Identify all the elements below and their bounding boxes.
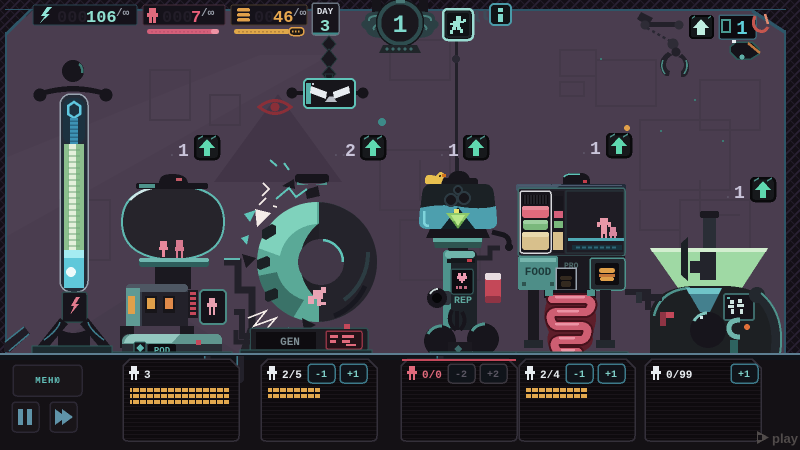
svg-text:МЕНЮ: МЕНЮ xyxy=(35,376,61,386)
svg-text:.: . xyxy=(168,145,176,160)
svg-text:1: 1 xyxy=(392,11,407,40)
svg-text:FOOD: FOOD xyxy=(525,267,552,279)
svg-text:106: 106 xyxy=(86,9,117,28)
svg-text:.: . xyxy=(724,187,732,202)
svg-text:46: 46 xyxy=(273,9,293,28)
svg-text:REP: REP xyxy=(454,296,472,307)
svg-text:2/4: 2/4 xyxy=(540,370,560,382)
svg-text:1: 1 xyxy=(734,184,745,204)
svg-text:-1: -1 xyxy=(315,370,327,381)
svg-text:/∞: /∞ xyxy=(116,8,130,20)
svg-text:000: 000 xyxy=(57,9,88,28)
svg-text:1: 1 xyxy=(736,18,747,40)
svg-text:play: play xyxy=(772,431,799,446)
svg-text:-2: -2 xyxy=(455,370,467,381)
svg-text:7: 7 xyxy=(191,9,201,28)
svg-text:2/5: 2/5 xyxy=(282,370,302,382)
svg-text:.: . xyxy=(580,143,588,158)
svg-text:/∞: /∞ xyxy=(201,8,215,20)
svg-text:1: 1 xyxy=(590,140,601,160)
svg-text:000: 000 xyxy=(162,9,193,28)
svg-text:00: 00 xyxy=(254,9,274,28)
svg-text:3: 3 xyxy=(144,370,151,382)
svg-text:3: 3 xyxy=(320,18,330,37)
svg-text:2: 2 xyxy=(345,142,356,162)
svg-text:-1: -1 xyxy=(573,370,585,381)
svg-text:GEN: GEN xyxy=(280,337,300,349)
svg-text:DAY: DAY xyxy=(317,7,334,17)
svg-text:0/99: 0/99 xyxy=(666,370,692,382)
svg-text:.: . xyxy=(438,145,446,160)
svg-text:0/0: 0/0 xyxy=(422,370,442,382)
svg-text:+1: +1 xyxy=(347,370,359,381)
svg-text:/∞: /∞ xyxy=(293,8,307,20)
svg-text:1: 1 xyxy=(178,142,189,162)
svg-text:+1: +1 xyxy=(605,370,617,381)
svg-text:+2: +2 xyxy=(487,370,499,381)
svg-text:+1: +1 xyxy=(738,370,750,381)
